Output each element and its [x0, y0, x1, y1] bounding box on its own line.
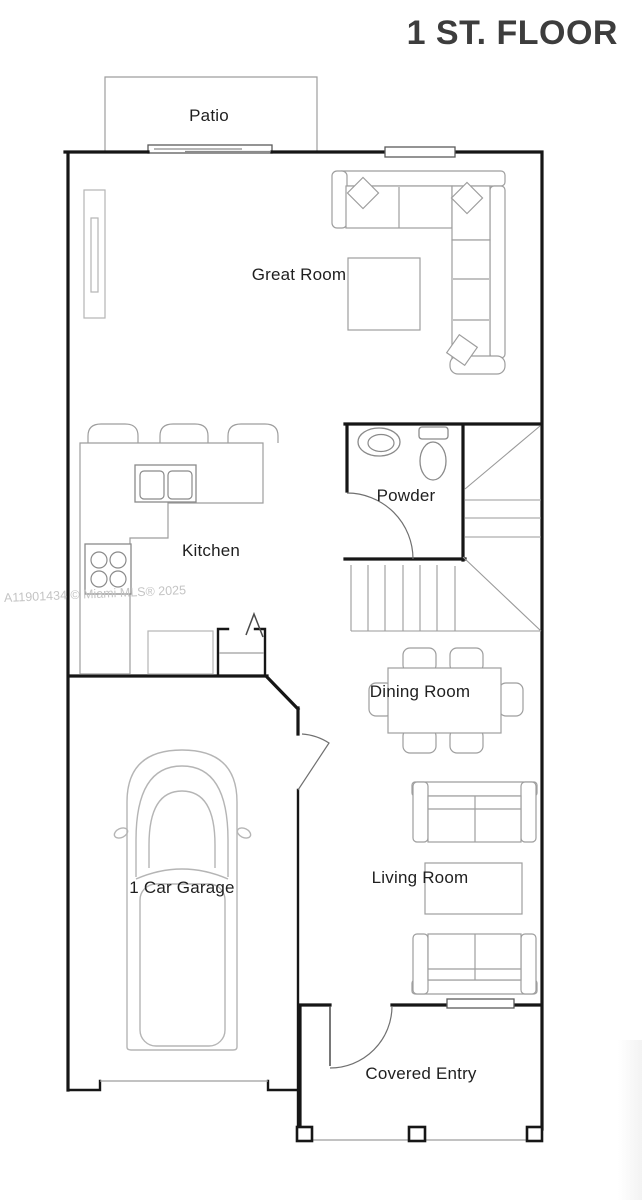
base-cabinet	[148, 631, 213, 674]
powder-sink	[358, 428, 400, 456]
great-room-window	[385, 147, 455, 157]
side-mirror	[236, 826, 252, 840]
room-label-garage: 1 Car Garage	[129, 878, 234, 898]
page-title: 1 ST. FLOOR	[407, 14, 618, 53]
kitchen-door	[246, 614, 263, 637]
room-label-kitchen: Kitchen	[182, 541, 240, 561]
toilet	[419, 427, 448, 480]
bar-stools	[88, 424, 278, 443]
great-room-table	[348, 258, 420, 330]
front-door	[330, 1006, 392, 1068]
scan-artifact-shade	[618, 1040, 642, 1200]
room-label-great-room: Great Room	[252, 265, 347, 285]
room-label-powder: Powder	[377, 486, 436, 506]
room-label-covered-entry: Covered Entry	[365, 1064, 476, 1084]
living-sofa-top	[412, 782, 537, 842]
garage-entry-door	[298, 734, 329, 790]
room-label-dining-room: Dining Room	[370, 682, 470, 702]
car	[113, 750, 252, 1050]
kitchen-sink	[135, 465, 196, 502]
room-label-living-room: Living Room	[372, 868, 469, 888]
entry-window	[447, 999, 514, 1008]
dining-chair	[499, 683, 523, 716]
living-sofa-bottom	[412, 934, 537, 994]
room-label-patio: Patio	[189, 106, 229, 126]
floorplan-page: 1 ST. FLOOR Patio Great Room Powder Kitc…	[0, 0, 642, 1200]
sliding-door	[148, 145, 272, 153]
entry-posts	[297, 1127, 542, 1141]
tv-console	[84, 190, 105, 318]
